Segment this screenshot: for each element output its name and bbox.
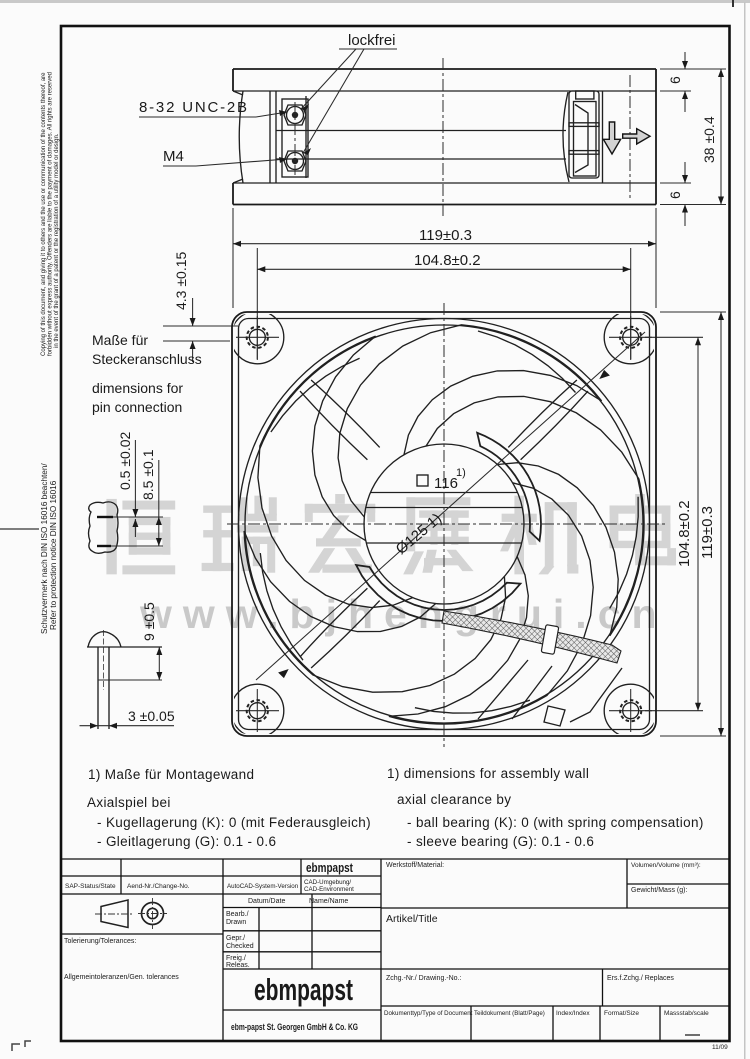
svg-text:lockfrei: lockfrei — [348, 32, 396, 49]
svg-text:forbidden without express auth: forbidden without express authority. Off… — [48, 72, 54, 356]
svg-text:M4: M4 — [163, 148, 184, 165]
svg-text:Teildokument (Blatt/Page): Teildokument (Blatt/Page) — [474, 1010, 545, 1017]
svg-text:9 ±0.5: 9 ±0.5 — [141, 602, 157, 641]
svg-text:Datum/Date: Datum/Date — [248, 898, 285, 905]
svg-text:Refer to protection notice DIN: Refer to protection notice DIN ISO 16016 — [49, 480, 58, 630]
svg-text:Freig./: Freig./ — [226, 955, 246, 962]
svg-text:pin connection: pin connection — [92, 399, 182, 415]
svg-text:6: 6 — [667, 76, 683, 84]
svg-text:Ers.f.Zchg./ Replaces: Ers.f.Zchg./ Replaces — [607, 975, 674, 982]
svg-text:Volumen/Volume (mm³):: Volumen/Volume (mm³): — [631, 862, 701, 869]
svg-text:Tolerierung/Tolerances:: Tolerierung/Tolerances: — [64, 938, 136, 945]
svg-text:8.5 ±0.1: 8.5 ±0.1 — [140, 449, 156, 500]
svg-text:ebmpapst: ebmpapst — [306, 861, 354, 875]
svg-text:Format/Size: Format/Size — [604, 1010, 639, 1017]
svg-text:Artikel/Title: Artikel/Title — [386, 913, 438, 925]
svg-text:- Kugellagerung (K): 0 (mit Fe: - Kugellagerung (K): 0 (mit Federausglei… — [97, 815, 371, 830]
svg-text:- ball bearing (K): 0 (with sp: - ball bearing (K): 0 (with spring compe… — [407, 815, 704, 830]
svg-text:in the event of the grant of a: in the event of the grant of a patent or… — [54, 133, 60, 348]
svg-text:1) dimensions for assembly wal: 1) dimensions for assembly wall — [387, 766, 589, 781]
svg-text:Drawn: Drawn — [226, 919, 246, 926]
svg-text:Copying of this document, and: Copying of this document, and giving it … — [41, 72, 47, 356]
svg-text:104.8±0.2: 104.8±0.2 — [414, 252, 481, 269]
svg-text:1) Maße für Montagewand: 1) Maße für Montagewand — [88, 767, 254, 782]
svg-text:6: 6 — [667, 191, 683, 199]
svg-text:dimensions for: dimensions for — [92, 380, 183, 396]
svg-text:3 ±0.05: 3 ±0.05 — [128, 708, 175, 724]
svg-text:CAD-Environment: CAD-Environment — [304, 886, 354, 893]
svg-text:AutoCAD-System-Version: AutoCAD-System-Version — [227, 883, 299, 890]
svg-text:www.bjhengrui.cn: www.bjhengrui.cn — [139, 591, 668, 637]
svg-text:Index/Index: Index/Index — [556, 1010, 590, 1017]
svg-text:Checked: Checked — [226, 943, 254, 950]
svg-text:Schutzvermerk nach DIN ISO 160: Schutzvermerk nach DIN ISO 16016 beachte… — [40, 463, 49, 634]
svg-text:ebm-papst St. Georgen GmbH & C: ebm-papst St. Georgen GmbH & Co. KG — [231, 1022, 358, 1032]
svg-text:119±0.3: 119±0.3 — [699, 506, 716, 559]
svg-text:Bearb./: Bearb./ — [226, 911, 249, 918]
svg-text:Axialspiel bei: Axialspiel bei — [87, 795, 171, 810]
svg-text:SAP-Status/State: SAP-Status/State — [65, 883, 116, 890]
svg-text:ebmpapst: ebmpapst — [254, 972, 353, 1007]
svg-text:104.8±0.2: 104.8±0.2 — [676, 500, 693, 567]
svg-text:Gewicht/Mass (g):: Gewicht/Mass (g): — [631, 887, 687, 894]
svg-text:- Gleitlagerung (G): 0.1 - 0.6: - Gleitlagerung (G): 0.1 - 0.6 — [97, 834, 276, 849]
svg-text:11/09: 11/09 — [712, 1044, 728, 1051]
svg-text:axial clearance by: axial clearance by — [397, 792, 511, 807]
svg-text:Allgemeintoleranzen/Gen. toler: Allgemeintoleranzen/Gen. tolerances — [64, 974, 179, 981]
svg-text:116: 116 — [434, 475, 458, 492]
svg-text:Dokumenttyp/Type of Document: Dokumenttyp/Type of Document — [384, 1010, 473, 1017]
svg-text:Steckeranschluss: Steckeranschluss — [92, 351, 202, 367]
svg-text:38 ±0.4: 38 ±0.4 — [701, 116, 717, 163]
svg-text:Releas.: Releas. — [226, 962, 250, 969]
svg-text:Werkstoff/Material:: Werkstoff/Material: — [386, 862, 444, 869]
svg-text:Maße für: Maße für — [92, 332, 148, 348]
svg-text:Aend-Nr./Change-No.: Aend-Nr./Change-No. — [127, 883, 190, 890]
svg-text:- sleeve bearing (G): 0.1 - 0.: - sleeve bearing (G): 0.1 - 0.6 — [407, 834, 594, 849]
svg-text:Name/Name: Name/Name — [309, 898, 348, 905]
svg-text:119±0.3: 119±0.3 — [419, 227, 472, 244]
svg-text:Gepr./: Gepr./ — [226, 935, 245, 942]
svg-text:0.5 ±0.02: 0.5 ±0.02 — [117, 432, 133, 490]
svg-text:1): 1) — [456, 467, 466, 479]
svg-text:8-32 UNC-2B: 8-32 UNC-2B — [139, 99, 249, 116]
svg-text:4.3 ±0.15: 4.3 ±0.15 — [173, 252, 189, 310]
svg-text:Massstab/scale: Massstab/scale — [664, 1010, 709, 1017]
svg-text:Zchg.-Nr./ Drawing.-No.:: Zchg.-Nr./ Drawing.-No.: — [386, 975, 462, 982]
svg-text:CAD-Umgebung/: CAD-Umgebung/ — [304, 879, 351, 886]
